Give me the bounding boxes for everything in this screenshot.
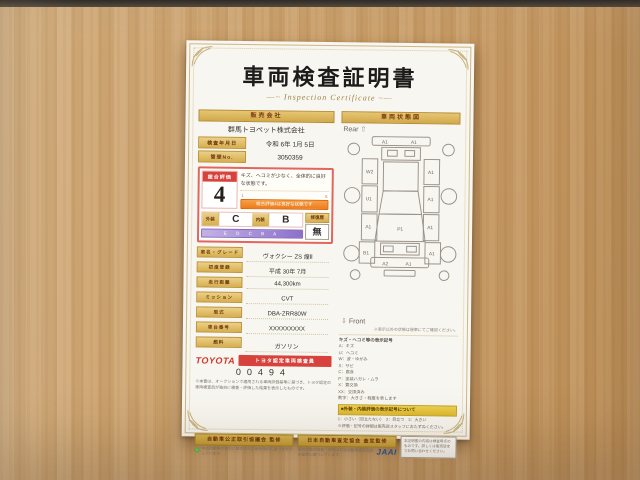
spec-value: 平成 30年 7月 — [247, 266, 329, 278]
grades-cells: 外装 C 内装 B — [201, 211, 303, 227]
spec-label: 走行距離 — [196, 276, 242, 288]
svg-text:W2: W2 — [365, 169, 373, 175]
rear-arrow-icon: ⇧ — [360, 125, 366, 133]
spec-row: ミッション CVT — [196, 291, 332, 308]
spec-list: 車名・グレード ヴォクシー ZS 煌Ⅱ 初度登録 平成 30年 7月 走行距離 … — [196, 246, 333, 353]
repair-history-value: 無 — [305, 224, 329, 240]
left-column: 販売会社 群馬トヨペット株式会社 検査年月日 令和 6年 1月 5日 管理No.… — [195, 109, 335, 428]
svg-text:B1: B1 — [363, 250, 369, 256]
title-block: 車両検査証明書 —~ Inspection Certificate ~— — [199, 65, 461, 103]
svg-text:P1: P1 — [397, 227, 403, 233]
spec-row: 車台番号 XXXXXXXXX — [196, 321, 332, 338]
svg-text:A1: A1 — [365, 224, 371, 230]
spec-label: ミッション — [196, 291, 242, 303]
desk-photo: 車両検査証明書 —~ Inspection Certificate ~— 販売会… — [0, 0, 640, 480]
spec-label: 型式 — [196, 306, 242, 318]
footer-left-note-text: 中古自動車の表示に関する公正競争規約に基づき表示しています。 — [201, 446, 293, 458]
exterior-grade: C — [219, 213, 252, 226]
footer-left-note: 中古自動車の表示に関する公正競争規約に基づき表示しています。 — [194, 446, 293, 458]
vehicle-condition-diagram: A1 A1 W2 A1 — [341, 133, 459, 316]
interior-label: 内装 — [252, 213, 269, 226]
front-label: ⇩ Front — [341, 317, 458, 326]
inspection-date-value: 令和 6年 1月 5日 — [246, 138, 334, 149]
spec-value: 44,300km — [246, 281, 328, 290]
symbol-note: ※評価・記号の詳細は販売店スタッフにおたずねください。 — [338, 423, 457, 430]
spec-value: ガソリン — [246, 341, 328, 353]
inspection-date-label: 検査年月日 — [198, 136, 246, 149]
svg-text:A1: A1 — [428, 251, 434, 257]
rear-text: Rear — [343, 126, 358, 133]
scale-min: 1 — [242, 193, 244, 198]
diagram-note: ※表示以外の状態は現車にてご確認ください。 — [339, 326, 458, 333]
exterior-label: 外装 — [202, 212, 219, 225]
inspection-date-row: 検査年月日 令和 6年 1月 5日 — [198, 136, 334, 150]
certificate-title: 車両検査証明書 — [199, 65, 461, 90]
fair-trade-council-bar: 自動車公正取引協議会 監修 — [194, 433, 293, 446]
eco-mark-icon — [194, 447, 199, 452]
inspector-number: 00494 — [195, 366, 331, 378]
subtitle-ornament-left: —~ — [267, 92, 281, 101]
footer-right-note-text: 車両状態の検査・評価は日本自動車査定協会の基準に基づいています。 — [298, 447, 375, 459]
spec-label: 車名・グレード — [197, 246, 243, 258]
right-column: 車両状態図 Rear ⇧ A1 A1 — [338, 111, 461, 430]
footer-side-box: 本証明書の内容は検査時点のものです。詳しくは販売店までお問い合わせください。 — [401, 435, 457, 458]
spec-row: 走行距離 44,300km — [196, 276, 332, 293]
inspector-block: TOYOTA トヨタ認定車両検査員 00494 ※本書は、オークションで適用され… — [195, 354, 331, 392]
spec-row: 型式 DBA-ZRR80W — [196, 306, 332, 323]
photo-top-edge — [0, 0, 640, 7]
overall-rating-box: 総合評価 4 キズ、ヘコミが少なく、全体的に良好な状態です。 1 S 総合評価4… — [197, 166, 334, 244]
jaai-logo: JAAI — [377, 448, 397, 456]
rating-scale-ends: 1 S — [241, 193, 329, 199]
footer-right-block: 日本自動車査定協会 査定監修 車両状態の検査・評価は日本自動車査定協会の基準に基… — [298, 434, 397, 459]
spec-label: 車台番号 — [196, 321, 242, 333]
subtitle-ornament-right: ~— — [378, 94, 392, 103]
spec-row: 燃料 ガソリン — [196, 336, 332, 353]
subtitle-text: Inspection Certificate — [284, 92, 376, 102]
svg-text:A1: A1 — [405, 262, 411, 268]
spec-row: 車名・グレード ヴォクシー ZS 煌Ⅱ — [197, 246, 333, 263]
rating-top: 総合評価 4 キズ、ヘコミが少なく、全体的に良好な状態です。 1 S 総合評価4… — [201, 170, 329, 210]
control-no-value: 3050359 — [246, 153, 334, 161]
diagram-header-bar: 車両状態図 — [341, 111, 460, 124]
scale-max: S — [325, 194, 328, 199]
legend-block: キズ・ヘコミ等の表示記号 A：キズ U：ヘコミ W：波・ゆがみ S：サビ C：腐… — [338, 334, 458, 430]
symbol-header-bar: ■外装・内装評価の表示記号について — [338, 404, 457, 416]
front-text: Front — [349, 318, 365, 325]
seller-header-bar: 販売会社 — [198, 109, 334, 123]
svg-text:A1: A1 — [427, 197, 433, 203]
control-no-row: 管理No. 3050359 — [198, 150, 334, 164]
grades-row: 外装 C 内装 B E D C B A 修復歴 無 — [201, 211, 329, 240]
svg-text:A2: A2 — [382, 261, 388, 267]
inspector-disclaimer: ※本書は、オークションで適用される車両評価基準に基づき、トヨタ認定の車両検査員が… — [195, 378, 331, 392]
svg-text:A1: A1 — [410, 140, 416, 146]
spec-label: 初度登録 — [197, 261, 243, 273]
rating-detail: キズ、ヘコミが少なく、全体的に良好な状態です。 1 S 総合評価4は良好な状態で… — [239, 171, 329, 210]
legend-item: 数字：大きさ・程度を表します — [338, 395, 457, 403]
repair-history-col: 修復歴 無 — [305, 213, 329, 240]
inspector-top: TOYOTA トヨタ認定車両検査員 — [195, 354, 331, 367]
rating-scale-highlight: 総合評価4は良好な状態です — [240, 199, 328, 210]
rating-comment: キズ、ヘコミが少なく、全体的に良好な状態です。 — [241, 172, 329, 192]
appraisal-institute-bar: 日本自動車査定協会 査定監修 — [298, 434, 397, 447]
overall-rating-label: 総合評価 — [203, 171, 237, 181]
footer-right-note: 車両状態の検査・評価は日本自動車査定協会の基準に基づいています。 JAAI — [298, 447, 397, 459]
svg-text:U1: U1 — [365, 196, 372, 202]
rating-score-cell: 総合評価 4 — [201, 170, 237, 208]
front-arrow-icon: ⇩ — [341, 317, 347, 325]
certificate-columns: 販売会社 群馬トヨペット株式会社 検査年月日 令和 6年 1月 5日 管理No.… — [195, 109, 461, 430]
svg-text:A1: A1 — [381, 139, 387, 145]
spec-label: 燃料 — [196, 336, 242, 348]
toyota-logo: TOYOTA — [195, 355, 235, 365]
footer-left-block: 自動車公正取引協議会 監修 中古自動車の表示に関する公正競争規約に基づき表示して… — [194, 433, 293, 458]
repair-history-label: 修復歴 — [305, 213, 329, 223]
grades-left: 外装 C 内装 B E D C B A — [201, 211, 303, 239]
spec-value: CVT — [246, 296, 328, 305]
certificate-footer: 自動車公正取引協議会 監修 中古自動車の表示に関する公正競争規約に基づき表示して… — [194, 433, 456, 460]
spec-value: DBA-ZRR80W — [246, 311, 328, 320]
grade-scale-bar: E D C B A — [201, 228, 303, 238]
inspection-certificate: 車両検査証明書 —~ Inspection Certificate ~— 販売会… — [182, 40, 475, 439]
overall-rating-score: 4 — [202, 181, 236, 207]
spec-row: 初度登録 平成 30年 7月 — [197, 261, 333, 278]
svg-text:A1: A1 — [427, 225, 433, 231]
spec-value: XXXXXXXXX — [246, 326, 328, 335]
certificate-subtitle: —~ Inspection Certificate ~— — [199, 91, 461, 103]
spec-value: ヴォクシー ZS 煌Ⅱ — [247, 251, 329, 263]
svg-text:A1: A1 — [427, 170, 433, 176]
seller-name: 群馬トヨペット株式会社 — [198, 124, 334, 136]
interior-grade: B — [269, 213, 302, 226]
control-no-label: 管理No. — [198, 150, 246, 163]
inspector-badge: トヨタ認定車両検査員 — [238, 355, 331, 367]
certificate-content: 車両検査証明書 —~ Inspection Certificate ~— 販売会… — [195, 51, 462, 428]
